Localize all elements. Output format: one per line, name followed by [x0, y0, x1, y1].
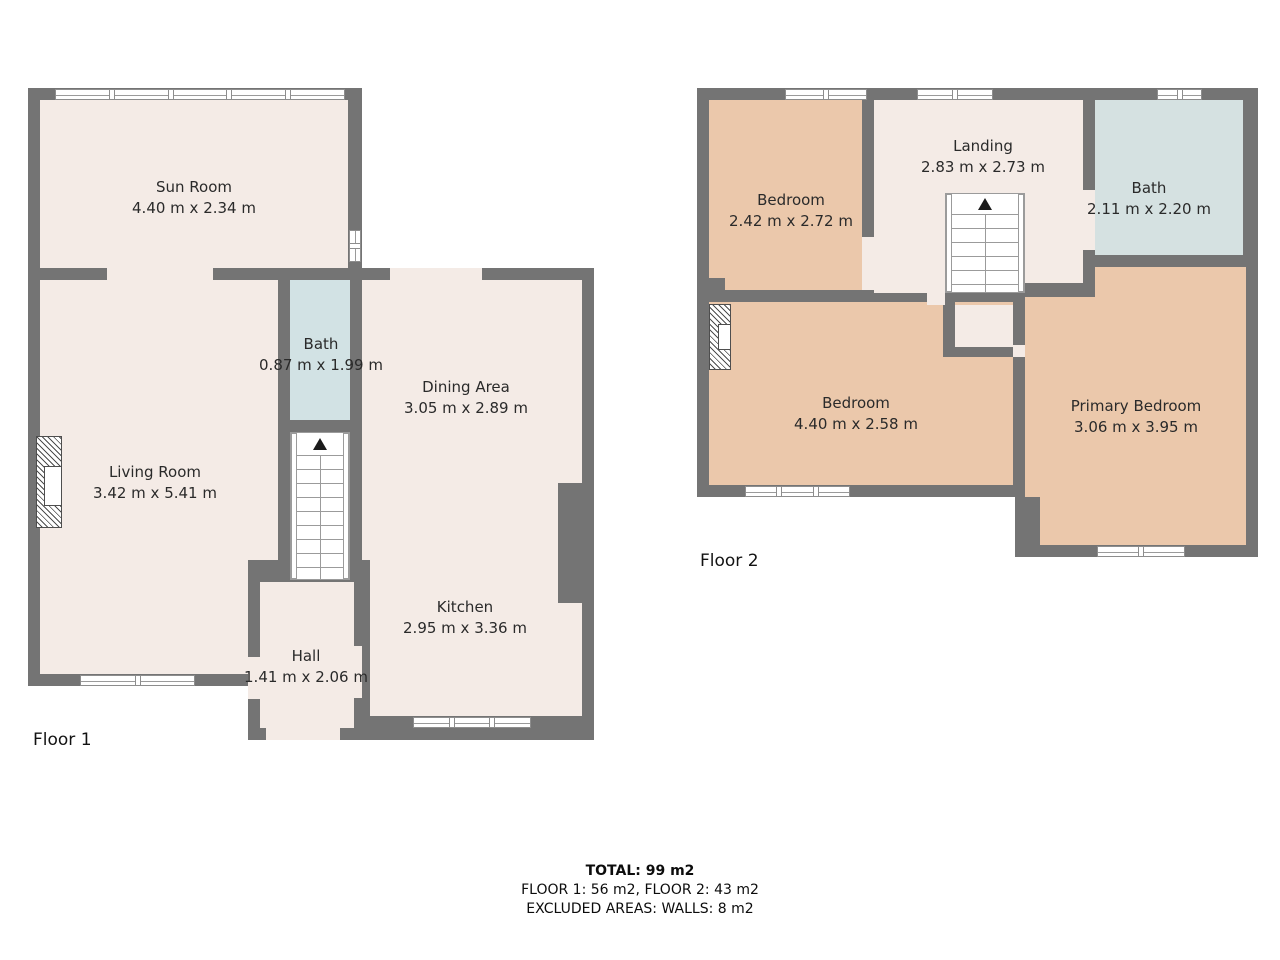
room-name: Bedroom [729, 190, 853, 211]
floor-plan-canvas: Sun Room 4.40 m x 2.34 m Living Room 3.4… [0, 0, 1280, 960]
room-label-bath-floor2: Bath 2.11 m x 2.20 m [1087, 178, 1211, 220]
room-dims: 2.42 m x 2.72 m [729, 211, 853, 232]
window [745, 486, 850, 497]
room-name: Kitchen [403, 597, 527, 618]
window-mullion [1138, 547, 1144, 556]
room-name: Dining Area [404, 377, 528, 398]
window-mullion [285, 90, 291, 99]
window [785, 89, 867, 100]
window-mullion [226, 90, 232, 99]
wall [943, 347, 1013, 357]
room-name: Hall [244, 646, 368, 667]
window [80, 675, 195, 686]
room-dims: 2.83 m x 2.73 m [921, 157, 1045, 178]
stair-centerline [985, 214, 986, 292]
room-dims: 3.05 m x 2.89 m [404, 398, 528, 419]
room-dims: 3.06 m x 3.95 m [1071, 417, 1202, 438]
under-stairs-closet [955, 305, 1013, 347]
wall [1083, 255, 1095, 297]
window [55, 89, 345, 100]
room-name: Bath [259, 334, 383, 355]
room-label-bedroom-wide: Bedroom 4.40 m x 2.58 m [794, 393, 918, 435]
wall [558, 483, 594, 603]
door-opening [107, 268, 213, 280]
window-mullion [813, 487, 819, 496]
room-dims: 1.41 m x 2.06 m [244, 667, 368, 688]
window-mullion [449, 718, 455, 727]
room-label-sun-room: Sun Room 4.40 m x 2.34 m [132, 177, 256, 219]
window-mullion [135, 676, 141, 685]
wall [697, 278, 725, 292]
window [349, 230, 361, 262]
window [1097, 546, 1185, 557]
room-label-bath-floor1: Bath 0.87 m x 1.99 m [259, 334, 383, 376]
door-opening [1013, 345, 1025, 357]
stairs-up-arrow-icon [313, 438, 327, 450]
window-mullion [823, 90, 829, 99]
room-dining-kitchen [362, 280, 582, 716]
window-mullion [489, 718, 495, 727]
window-mullion [350, 243, 360, 249]
door-opening [266, 714, 340, 740]
stairs-floor2 [945, 193, 1025, 293]
total-area: TOTAL: 99 m2 [0, 862, 1280, 881]
room-label-bedroom-small: Bedroom 2.42 m x 2.72 m [729, 190, 853, 232]
room-name: Bedroom [794, 393, 918, 414]
window-mullion [776, 487, 782, 496]
room-label-kitchen: Kitchen 2.95 m x 3.36 m [403, 597, 527, 639]
room-label-living-room: Living Room 3.42 m x 5.41 m [93, 462, 217, 504]
floor2-label: Floor 2 [700, 551, 759, 571]
window-mullion [168, 90, 174, 99]
stair-rail [1018, 194, 1024, 292]
stairs-floor1 [290, 432, 350, 580]
room-label-hall: Hall 1.41 m x 2.06 m [244, 646, 368, 688]
stair-centerline [320, 455, 321, 579]
room-primary-bedroom [1040, 497, 1246, 545]
room-name: Landing [921, 136, 1045, 157]
room-dims: 3.42 m x 5.41 m [93, 483, 217, 504]
room-name: Primary Bedroom [1071, 396, 1202, 417]
stair-rail [343, 433, 349, 579]
room-primary-bedroom [1095, 267, 1246, 297]
room-dims: 4.40 m x 2.34 m [132, 198, 256, 219]
room-dims: 4.40 m x 2.58 m [794, 414, 918, 435]
chimney-recess [718, 324, 731, 350]
window-mullion [1177, 90, 1183, 99]
stairs-up-arrow-icon [978, 198, 992, 210]
room-name: Bath [1087, 178, 1211, 199]
room-dims: 2.11 m x 2.20 m [1087, 199, 1211, 220]
window [413, 717, 531, 728]
room-dims: 0.87 m x 1.99 m [259, 355, 383, 376]
window [917, 89, 993, 100]
door-opening [927, 293, 945, 305]
floor-areas: FLOOR 1: 56 m2, FLOOR 2: 43 m2 [0, 881, 1280, 900]
chimney-recess [44, 466, 62, 506]
floor1-label: Floor 1 [33, 730, 92, 750]
door-opening [862, 237, 874, 290]
excluded-areas: EXCLUDED AREAS: WALLS: 8 m2 [0, 900, 1280, 919]
area-summary: TOTAL: 99 m2 FLOOR 1: 56 m2, FLOOR 2: 43… [0, 862, 1280, 919]
room-name: Sun Room [132, 177, 256, 198]
room-label-primary-bedroom: Primary Bedroom 3.06 m x 3.95 m [1071, 396, 1202, 438]
door-opening [390, 268, 482, 280]
room-dims: 2.95 m x 3.36 m [403, 618, 527, 639]
window-mullion [952, 90, 958, 99]
window-mullion [109, 90, 115, 99]
room-label-landing: Landing 2.83 m x 2.73 m [921, 136, 1045, 178]
room-name: Living Room [93, 462, 217, 483]
room-label-dining-area: Dining Area 3.05 m x 2.89 m [404, 377, 528, 419]
window [1157, 89, 1202, 100]
